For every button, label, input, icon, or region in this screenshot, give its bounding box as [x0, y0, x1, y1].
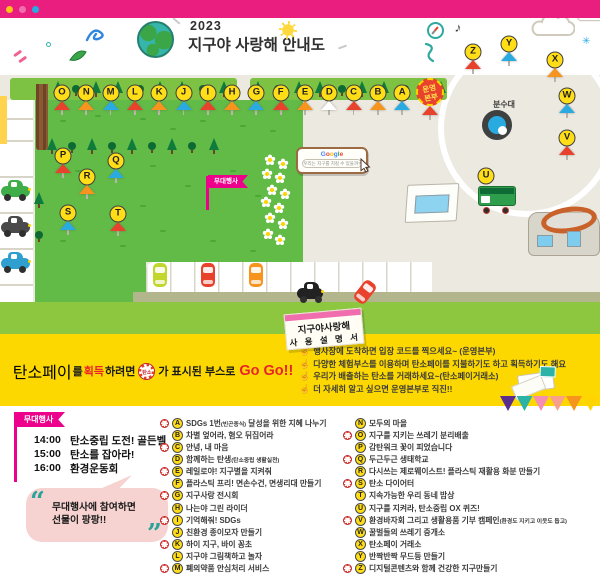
booth-label: 폐의약품 안심처리 서비스	[186, 563, 269, 574]
booth-marker-Z: Z	[465, 44, 482, 61]
bunting-flag	[583, 396, 599, 411]
tent-icon	[369, 101, 387, 115]
grass-icon	[270, 130, 276, 132]
confetti-dot	[46, 42, 51, 47]
squiggle-icon	[84, 24, 110, 46]
booth-label: 환경바자회 그리고 생활용품 기부 캠페인(환경도 지키고 이웃도 돕고)	[369, 515, 567, 526]
booth-list-right: N모두의 마을O지구를 지키는 쓰레기 분리배출P감탄워크 꽃이 피었습니다Q두…	[342, 417, 598, 575]
booth-label: 친환경 종이모자 만들기	[186, 527, 262, 538]
grass-icon	[150, 165, 156, 167]
booth-marker-X: X	[547, 52, 564, 69]
event-guide-poster: 2023 지구야 사랑해 안내도 ♪ ♬ ✳ 분수대 운영본부 무대행사 Goo…	[0, 0, 600, 576]
carbon-coin-icon	[160, 516, 169, 525]
fence	[0, 96, 7, 144]
car-icon	[153, 263, 167, 287]
window-dot	[19, 6, 26, 13]
tent-icon	[109, 222, 127, 236]
fountain	[482, 110, 512, 140]
carbon-coin-icon	[343, 516, 352, 525]
booth-list-item: P감탄워크 꽃이 피었습니다	[342, 441, 598, 453]
car-icon	[1, 258, 30, 269]
booth-marker-K: K	[151, 85, 168, 102]
tent-icon	[546, 68, 564, 82]
booth-letter-badge: O	[355, 430, 366, 441]
carbon-banner-text: 탄소페이	[13, 359, 72, 383]
booth-letter-badge: K	[172, 539, 183, 550]
car-icon	[297, 288, 323, 299]
grass-icon	[140, 118, 146, 120]
flower-icon	[264, 200, 268, 204]
booth-label: 함께하는 탄생(탄소중립 생활실천)	[186, 454, 279, 465]
booth-marker-L: L	[126, 85, 143, 102]
tent-icon	[150, 101, 168, 115]
booth-letter-badge: S	[355, 478, 366, 489]
manual-sign: 지구야사랑해 사 용 설 명 서	[284, 308, 365, 351]
booth-label: 지구를 지키는 쓰레기 분리배출	[369, 430, 469, 441]
pine-tree-icon	[127, 138, 137, 154]
booth-letter-badge: R	[355, 466, 366, 477]
booth-marker-Y: Y	[501, 36, 518, 53]
booth-list-item: N모두의 마을	[342, 417, 598, 429]
tent-icon	[558, 104, 576, 118]
booth-label: 하이 지구, 바이 꽁초	[186, 539, 252, 550]
tent-icon	[54, 164, 72, 178]
booth-list-item: X탄소페이 거래소	[342, 538, 598, 550]
booth-label: 다시쓰는 제로웨이스트! 플라스틱 재활용 화분 만들기	[369, 466, 540, 477]
tent-icon	[199, 101, 217, 115]
booth-label: 나는야 그린 라이더	[186, 503, 248, 514]
tent-icon	[107, 169, 125, 183]
booth-letter-badge: U	[355, 503, 366, 514]
carbon-pay-banner: 탄소페이를 획득하려면 탄소가 표시된 부스로 Go Go!!	[8, 356, 298, 386]
round-tree-icon	[188, 142, 196, 153]
booth-label: 지속가능한 우리 동네 밥상	[369, 490, 454, 501]
booth-marker-B: B	[369, 85, 386, 102]
open-quote: “	[30, 496, 45, 508]
grass-icon	[230, 170, 236, 172]
booth-list-item: Q두근두근 생태학교	[342, 453, 598, 465]
booth-marker-G: G	[248, 85, 265, 102]
booth-label: 레일로야! 지구별을 지켜줘	[186, 466, 272, 477]
booth-letter-badge: W	[355, 527, 366, 538]
booth-list-item: C안녕, 내 마음	[159, 441, 341, 453]
booth-marker-P: P	[55, 148, 72, 165]
booth-label: 디지털콘텐츠와 함께 건강한 지구만들기	[369, 563, 497, 574]
booth-label: 차별 엎어라, 혐오 뒤집어라	[186, 430, 274, 441]
booth-list-item: H나는야 그린 라이더	[159, 502, 341, 514]
pointing-hand-icon: ☝	[299, 359, 310, 369]
booth-list-item: W꿀벌들의 쓰레기 중개소	[342, 526, 598, 538]
booth-marker-F: F	[272, 85, 289, 102]
tent-icon	[464, 60, 482, 74]
cursor-icon	[360, 158, 371, 173]
booth-list-item: S탄소 다이어터	[342, 478, 598, 490]
poster-year: 2023	[190, 19, 222, 33]
food-truck-icon	[478, 186, 516, 212]
squiggle-icon	[423, 42, 437, 64]
tent-icon	[59, 221, 77, 235]
booth-list-item: Z디지털콘텐츠와 함께 건강한 지구만들기	[342, 563, 598, 575]
window-dot	[32, 6, 39, 13]
booth-letter-badge: D	[172, 454, 183, 465]
tent-icon	[77, 101, 95, 115]
booth-list-item: E레일로야! 지구별을 지켜줘	[159, 466, 341, 478]
booth-letter-badge: P	[355, 442, 366, 453]
car-icon	[1, 186, 30, 197]
fountain-label: 분수대	[484, 99, 524, 110]
booth-marker-O: O	[54, 85, 71, 102]
booth-letter-badge: G	[172, 490, 183, 501]
booth-letter-badge: Q	[355, 454, 366, 465]
earth-icon	[137, 21, 174, 58]
carbon-coin-icon	[160, 491, 169, 500]
booth-list-item: T지속가능한 우리 동네 밥상	[342, 490, 598, 502]
booth-marker-D: D	[321, 85, 338, 102]
booth-letter-badge: Z	[355, 563, 366, 574]
event-field	[35, 262, 146, 306]
booth-letter-badge: L	[172, 551, 183, 562]
booth-label: 꿀벌들의 쓰레기 중개소	[369, 527, 445, 538]
booth-marker-M: M	[102, 85, 119, 102]
pine-tree-icon	[34, 192, 44, 208]
flower-icon	[281, 222, 285, 226]
carbon-banner-text: 를	[73, 363, 83, 379]
tent-icon	[126, 101, 144, 115]
grass-icon	[200, 120, 206, 122]
carbon-coin-icon	[160, 540, 169, 549]
bunting-flag	[533, 396, 549, 411]
booth-letter-badge: T	[355, 490, 366, 501]
carbon-coin-icon	[160, 564, 169, 573]
schedule-flag: 무대행사	[17, 412, 65, 427]
booth-label: 플라스틱 프리! 면손수건, 면생리대 만들기	[186, 478, 321, 489]
bunting-flag	[566, 396, 582, 411]
booth-marker-C: C	[345, 85, 362, 102]
booth-list-item: M폐의약품 안심처리 서비스	[159, 563, 341, 575]
google-logo: Google	[298, 151, 366, 158]
booth-letter-badge: F	[172, 478, 183, 489]
carbon-coin-icon	[343, 455, 352, 464]
booth-marker-W: W	[559, 88, 576, 105]
carbon-banner-text: 가 표시된 부스로	[158, 363, 235, 379]
booth-letter-badge: A	[172, 418, 183, 429]
round-tree-icon	[35, 231, 43, 242]
booth-label: 두근두근 생태학교	[369, 454, 429, 465]
grass-icon	[170, 128, 176, 130]
tent-icon	[393, 101, 411, 115]
search-input: 우리는 지구를 지킬 수 있을까?	[302, 159, 362, 168]
bunting-flag	[550, 396, 566, 411]
speech-bubble: “ 무대행사에 참여하면선물이 팡팡!! ”	[26, 488, 168, 542]
grass-icon	[185, 185, 191, 187]
carbon-banner-text: 획득	[84, 363, 104, 379]
tent-icon	[421, 106, 439, 120]
booth-letter-badge: M	[172, 563, 183, 574]
booth-marker-Q: Q	[108, 153, 125, 170]
carbon-banner-text: 하려면	[105, 363, 135, 379]
booth-list-item: V환경바자회 그리고 생활용품 기부 캠페인(환경도 지키고 이웃도 돕고)	[342, 514, 598, 526]
pine-tree-icon	[209, 138, 219, 154]
event-field	[35, 100, 303, 262]
sun-icon	[279, 21, 297, 39]
google-search-illustration: Google 우리는 지구를 지킬 수 있을까?	[296, 147, 368, 174]
speech-bubble-text: 무대행사에 참여하면선물이 팡팡!!	[52, 501, 136, 527]
carbon-coin-icon	[160, 443, 169, 452]
booth-label: 반짝반짝 무드등 만들기	[369, 551, 445, 562]
schedule-row: 15:00탄소를 잡아라!	[34, 447, 166, 461]
booth-list-item: L지구야 그림책하고 놀자	[159, 551, 341, 563]
grass-icon	[120, 245, 126, 247]
flower-icon	[265, 172, 269, 176]
booth-marker-T: T	[110, 206, 127, 223]
booth-list-item: B차별 엎어라, 혐오 뒤집어라	[159, 429, 341, 441]
compass-icon	[427, 22, 444, 39]
flower-icon	[283, 192, 287, 196]
flower-sparkle-icon: ✳	[582, 36, 590, 47]
grass-icon	[60, 240, 66, 242]
carbon-coin-icon	[160, 467, 169, 476]
round-tree-icon	[108, 142, 116, 153]
poster-title: 지구야 사랑해 안내도	[188, 33, 325, 55]
booth-list-item: R다시쓰는 제로웨이스트! 플라스틱 재활용 화분 만들기	[342, 466, 598, 478]
pine-tree-icon	[167, 138, 177, 154]
booth-list-item: O지구를 지키는 쓰레기 분리배출	[342, 429, 598, 441]
grass-icon	[240, 125, 246, 127]
tent-icon	[345, 101, 363, 115]
booth-list-left: ASDGs 1번(빈곤종식) 달성을 위한 지혜 나누기B차별 엎어라, 혐오 …	[159, 417, 341, 575]
booth-label: 감탄워크 꽃이 피었습니다	[369, 442, 452, 453]
booth-list-item: J친환경 종이모자 만들기	[159, 526, 341, 538]
booth-marker-N: N	[78, 85, 95, 102]
flower-icon	[268, 216, 272, 220]
booth-marker-S: S	[60, 205, 77, 222]
booth-list-item: I기억해줘! SDGs	[159, 514, 341, 526]
booth-letter-badge: B	[172, 430, 183, 441]
booth-label: 탄소페이 거래소	[369, 539, 421, 550]
booth-marker-U: U	[478, 168, 495, 185]
booth-label: 지구야 그림책하고 놀자	[186, 551, 262, 562]
tent-icon	[53, 101, 71, 115]
tent-icon	[223, 101, 241, 115]
grass-icon	[60, 120, 66, 122]
booth-letter-badge: Y	[355, 551, 366, 562]
booth-marker-J: J	[175, 85, 192, 102]
booth-label: 안녕, 내 마음	[186, 442, 228, 453]
booth-label: SDGs 1번(빈곤종식) 달성을 위한 지혜 나누기	[186, 418, 327, 429]
tent-icon	[102, 101, 120, 115]
manual-item: ☝행사장에 도착하면 입장 코드를 찍으세요~ (운영본부)	[299, 345, 595, 358]
flower-icon	[278, 238, 282, 242]
schedule-row: 16:00환경운동회	[34, 461, 166, 475]
sparkle-dash	[172, 17, 180, 24]
parking-row	[146, 262, 432, 292]
grass-icon	[250, 250, 256, 252]
confetti-dash	[13, 50, 22, 57]
pointing-hand-icon: ☝	[299, 384, 310, 394]
round-tree-icon	[148, 142, 156, 153]
flower-icon	[270, 188, 274, 192]
tent-icon	[175, 101, 193, 115]
booth-letter-badge: N	[355, 418, 366, 429]
pointing-hand-icon: ☝	[299, 371, 310, 381]
tent-icon	[320, 101, 338, 115]
carbon-coin-icon	[160, 419, 169, 428]
bunting-flag	[517, 396, 533, 411]
booth-label: 지구를 지켜라, 탄소중립 OX 퀴즈!	[369, 503, 480, 514]
booth-letter-badge: J	[172, 527, 183, 538]
carbon-banner-text: Go Go!!	[239, 363, 293, 379]
tent-icon	[558, 146, 576, 160]
tent-icon	[78, 185, 96, 199]
booth-list-item: G지구사랑 전시회	[159, 490, 341, 502]
tent-icon	[247, 101, 265, 115]
tent-icon	[500, 52, 518, 66]
flower-icon	[268, 158, 272, 162]
car-icon	[249, 263, 263, 287]
booth-marker-V: V	[559, 130, 576, 147]
carbon-coin-icon	[343, 564, 352, 573]
booth-list-item: K하이 지구, 바이 꽁초	[159, 538, 341, 550]
pine-tree-icon	[87, 138, 97, 154]
booth-letter-badge: I	[172, 515, 183, 526]
grass-icon	[140, 205, 146, 207]
booth-letter-badge: E	[172, 466, 183, 477]
carbon-coin-icon	[343, 431, 352, 440]
grass-icon	[210, 240, 216, 242]
stadium-building	[528, 212, 600, 256]
booth-marker-R: R	[79, 169, 96, 186]
bunting-flags	[500, 396, 599, 416]
stage-flag: 무대행사	[208, 175, 248, 188]
booth-marker-H: H	[224, 85, 241, 102]
booth-list-item: U지구를 지켜라, 탄소중립 OX 퀴즈!	[342, 502, 598, 514]
music-note-icon: ♪	[454, 20, 463, 36]
window-dot	[6, 6, 13, 13]
booth-label: 탄소 다이어터	[369, 478, 414, 489]
confetti-dash	[18, 56, 27, 63]
booth-letter-badge: C	[172, 442, 183, 453]
stage-schedule: 14:00탄소중립 도전! 골든벨15:00탄소를 잡아라!16:00환경운동회	[34, 433, 166, 475]
carbon-coin-icon: 탄소	[138, 363, 155, 380]
booth-marker-E: E	[297, 85, 314, 102]
booth-label: 기억해줘! SDGs	[186, 515, 241, 526]
flower-icon	[266, 232, 270, 236]
grass-icon	[95, 115, 101, 117]
booth-marker-I: I	[199, 85, 216, 102]
leaf-icon	[68, 48, 88, 63]
flower-icon	[281, 162, 285, 166]
building	[405, 183, 460, 223]
booth-label: 지구사랑 전시회	[186, 490, 238, 501]
flower-icon	[277, 206, 281, 210]
car-icon	[1, 222, 30, 233]
booth-list-item: ASDGs 1번(빈곤종식) 달성을 위한 지혜 나누기	[159, 417, 341, 429]
carbon-coin-icon	[343, 479, 352, 488]
booth-letter-badge: V	[355, 515, 366, 526]
booth-letter-badge: H	[172, 503, 183, 514]
schedule-flag-pole	[14, 412, 17, 482]
booth-list-item: Y반짝반짝 무드등 만들기	[342, 551, 598, 563]
booth-letter-badge: X	[355, 539, 366, 550]
schedule-row: 14:00탄소중립 도전! 골든벨	[34, 433, 166, 447]
grass-icon	[255, 195, 261, 197]
bunting-flag	[500, 396, 516, 411]
car-icon	[201, 263, 215, 287]
sparkle-dash	[338, 45, 347, 50]
window-title-bar	[0, 0, 600, 18]
booth-list-item: D함께하는 탄생(탄소중립 생활실천)	[159, 453, 341, 465]
tent-icon	[272, 101, 290, 115]
booth-marker-A: A	[394, 85, 411, 102]
booth-label: 모두의 마을	[369, 418, 407, 429]
flower-icon	[278, 176, 282, 180]
tent-icon	[296, 101, 314, 115]
booth-list-item: F플라스틱 프리! 면손수건, 면생리대 만들기	[159, 478, 341, 490]
grass-icon	[160, 230, 166, 232]
